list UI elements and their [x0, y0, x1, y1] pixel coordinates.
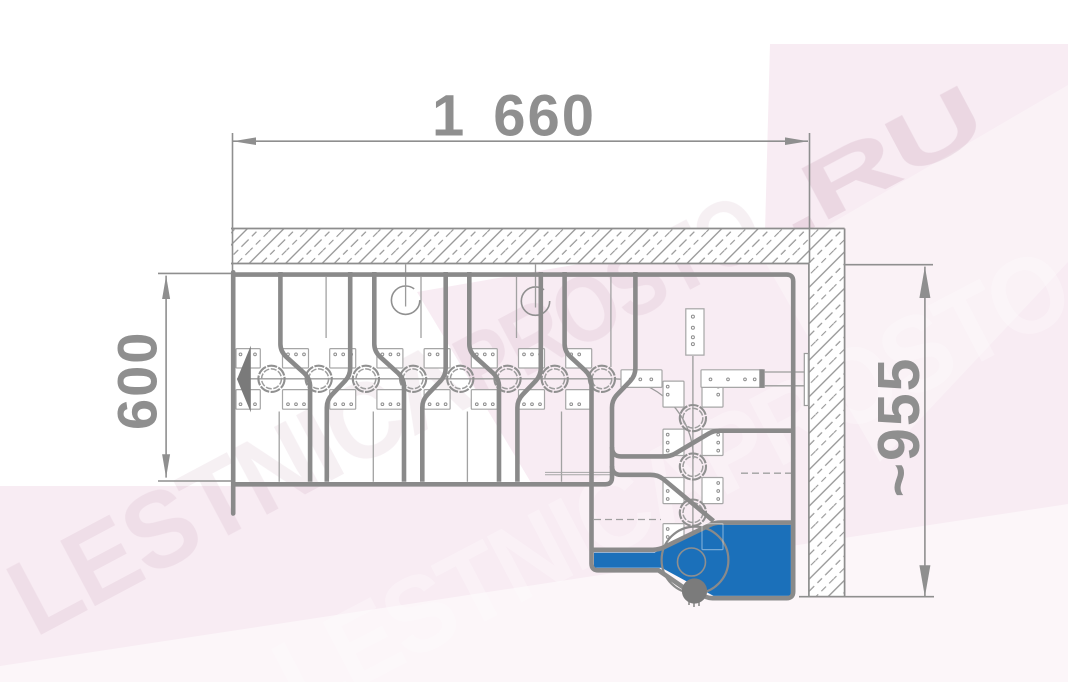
svg-text:1660: 1660: [432, 84, 596, 149]
svg-text:~955: ~955: [866, 357, 932, 498]
svg-text:600: 600: [106, 331, 169, 430]
